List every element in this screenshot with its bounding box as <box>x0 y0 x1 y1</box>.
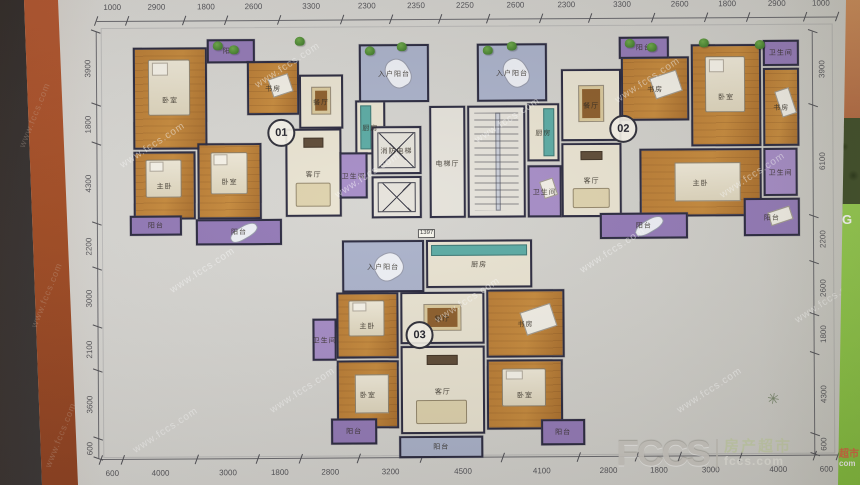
floor-plan: 1000290018002600330023002350225026002300… <box>0 0 860 485</box>
room-label: 卫生间 <box>313 335 337 345</box>
room-label: 入户阳台 <box>378 69 410 79</box>
plant-icon <box>213 41 223 50</box>
unit-badge-01: 01 <box>267 119 295 147</box>
room-label: 阳台 <box>764 213 780 223</box>
room-label: 卫生间 <box>533 187 557 197</box>
corner-watermark: 超市 com <box>839 449 859 469</box>
room-label: 入户阳台 <box>367 262 399 272</box>
plants-layer <box>0 0 860 485</box>
room-label: 卧室 <box>517 391 533 401</box>
plant-icon <box>295 37 305 46</box>
fccs-domain-text: fccs.com <box>724 455 792 468</box>
room-label: 入户阳台 <box>496 68 528 78</box>
room-label: 厨房 <box>535 128 551 138</box>
plant-icon <box>699 38 709 47</box>
room-label: 消防电梯 <box>380 146 412 156</box>
room-label: 书房 <box>265 84 281 94</box>
plant-icon <box>397 42 407 51</box>
room-label: 餐厅 <box>313 98 329 108</box>
room-label: 餐厅 <box>434 314 450 324</box>
unit-badge-03: 03 <box>405 321 433 349</box>
corner-domain-text: com <box>839 460 859 469</box>
plant-icon <box>755 40 765 49</box>
room-label: 阳台 <box>433 442 449 452</box>
room-label: 书房 <box>773 103 789 113</box>
room-label: 书房 <box>517 320 533 330</box>
room-label: 阳台 <box>636 221 652 231</box>
room-label: 主卧 <box>693 179 709 189</box>
paper-page: 1000290018002600330023002350225026002300… <box>0 0 860 485</box>
room-label: 阳台 <box>231 228 247 238</box>
room-label: 卫生间 <box>769 48 793 58</box>
plant-icon <box>647 43 657 52</box>
room-label: 阳台 <box>346 427 362 437</box>
partial-letter: G <box>842 212 852 227</box>
room-label: 客厅 <box>435 387 451 397</box>
plant-icon <box>229 45 239 54</box>
room-label: 客厅 <box>306 169 322 179</box>
fccs-logo-text: 房产超市 fccs.com <box>716 439 792 468</box>
room-label: 卧室 <box>718 92 734 102</box>
room-label: 阳台 <box>555 428 571 438</box>
room-label: 阳台 <box>148 221 164 231</box>
room-label: 书房 <box>647 85 663 95</box>
room-label: 卧室 <box>360 391 376 401</box>
floorplan-photo: 1000290018002600330023002350225026002300… <box>0 0 860 485</box>
room-label: 客厅 <box>584 176 600 186</box>
plant-icon <box>507 41 517 50</box>
fccs-brand-text: 房产超市 <box>724 439 792 455</box>
inner-dimension-note: 1397 <box>418 229 435 238</box>
plant-icon <box>483 46 493 55</box>
room-label: 厨房 <box>362 123 378 133</box>
room-label: 餐厅 <box>583 101 599 111</box>
room-label: 卫生间 <box>769 168 793 178</box>
room-label: 卧室 <box>222 178 238 188</box>
plant-icon <box>625 39 635 48</box>
room-label: 主卧 <box>157 182 173 192</box>
plant-icon <box>365 46 375 55</box>
room-label: 电梯厅 <box>435 159 459 169</box>
fccs-logo: FCCS 房产超市 fccs.com <box>616 435 792 472</box>
unit-badge-02: 02 <box>609 115 637 143</box>
room-label: 卧室 <box>162 95 178 105</box>
fccs-wordmark: FCCS <box>616 436 709 471</box>
room-label: 主卧 <box>359 322 375 332</box>
room-label: 卫生间 <box>342 171 366 181</box>
room-label: 厨房 <box>471 260 487 270</box>
